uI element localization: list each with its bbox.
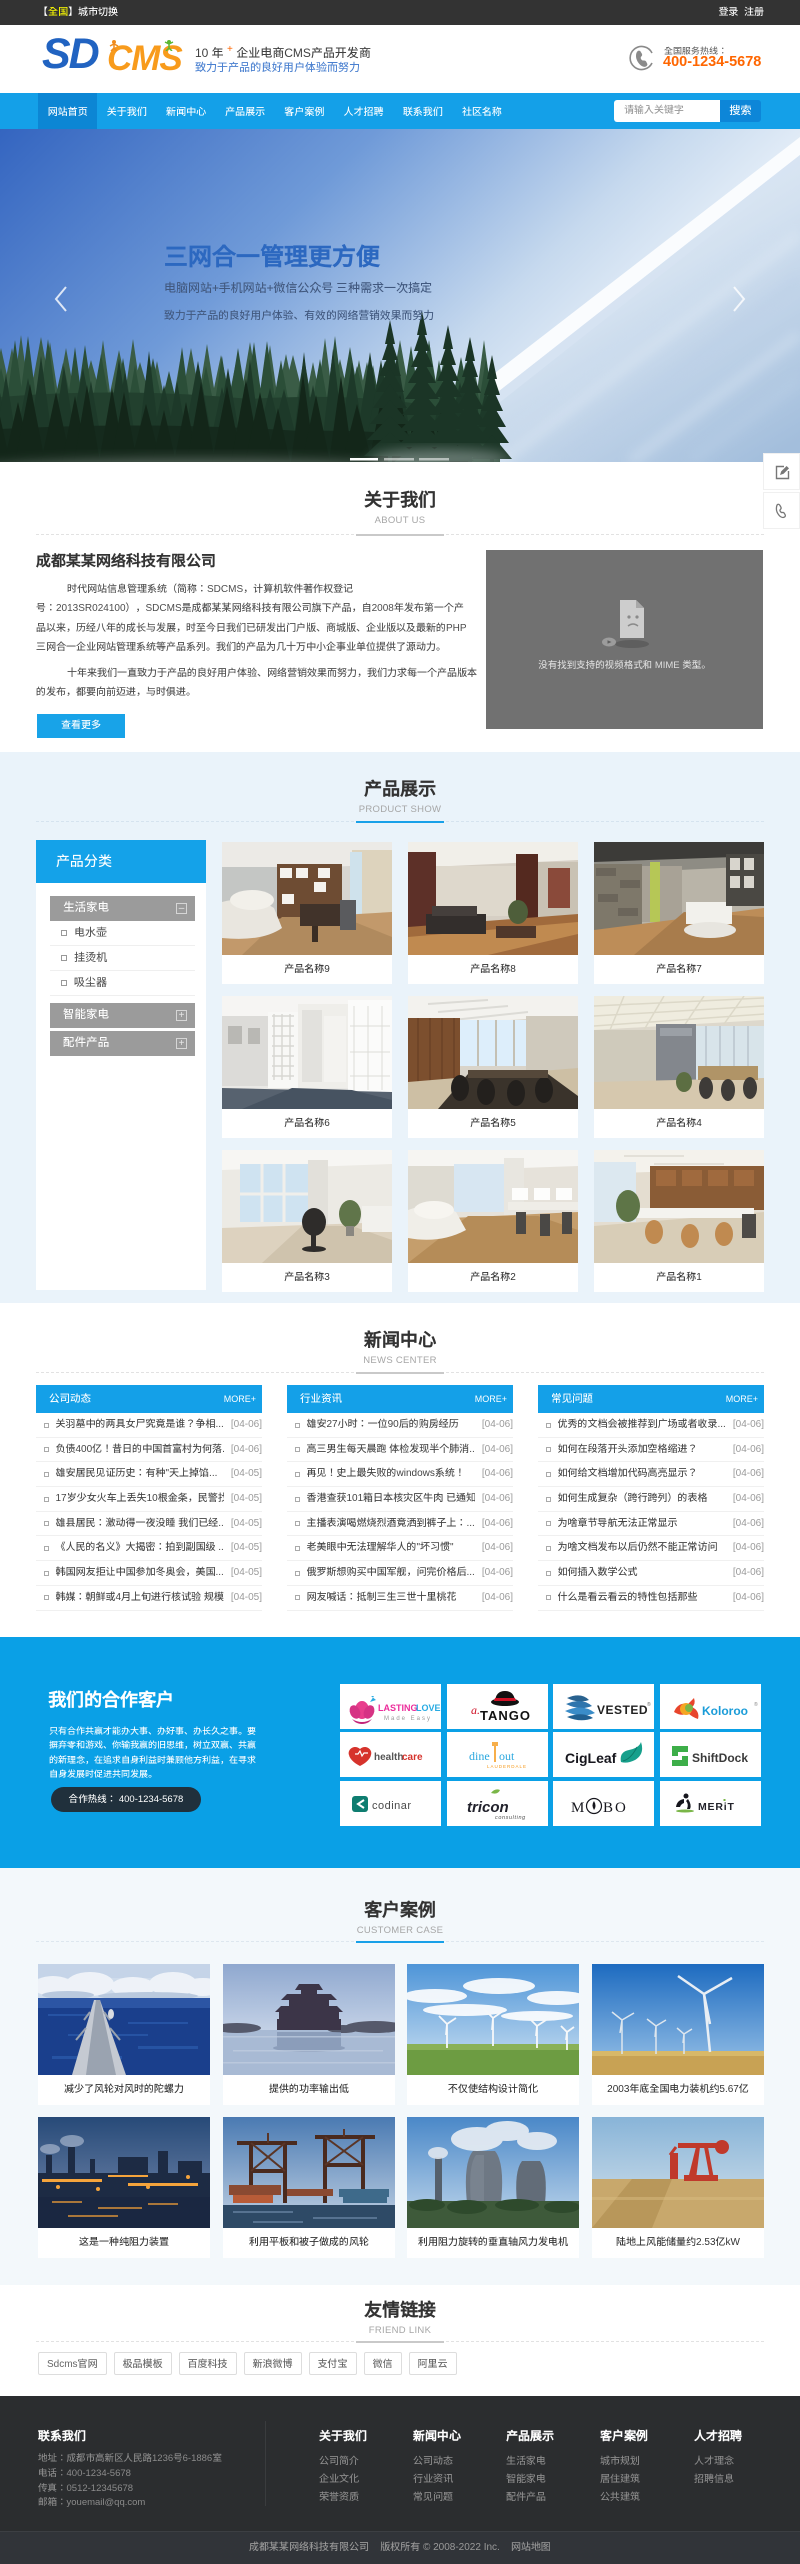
svg-text:电脑网站+手机网站+微信公众号 三种需求一次搞定: 电脑网站+手机网站+微信公众号 三种需求一次搞定: [164, 280, 432, 295]
svg-text:致力于产品的良好用户体验、有效的网络营销效果而努力: 致力于产品的良好用户体验、有效的网络营销效果而努力: [164, 309, 434, 322]
svg-text:consulting: consulting: [495, 1815, 526, 1821]
svg-text:Koloroo: Koloroo: [702, 1704, 748, 1718]
svg-text:dine: dine: [469, 1749, 490, 1763]
svg-text:®: ®: [754, 1701, 758, 1708]
svg-text:M: M: [571, 1800, 586, 1816]
svg-text:MERiT: MERiT: [698, 1801, 735, 1813]
svg-text:codinar: codinar: [372, 1800, 412, 1812]
svg-text:care: care: [402, 1752, 423, 1763]
svg-text:Made Easy: Made Easy: [384, 1716, 432, 1722]
svg-text:CigLeaf: CigLeaf: [565, 1750, 617, 1766]
svg-text:ShiftDock: ShiftDock: [692, 1751, 748, 1765]
svg-text:BO: BO: [603, 1800, 628, 1816]
svg-text:LAUDERDALE: LAUDERDALE: [487, 1764, 527, 1769]
svg-text:®: ®: [647, 1701, 651, 1708]
svg-text:LOVE: LOVE: [416, 1703, 441, 1713]
svg-text:health: health: [374, 1752, 403, 1763]
svg-text:TANGO: TANGO: [480, 1708, 531, 1723]
svg-text:a.: a.: [471, 1703, 480, 1717]
svg-text:三网合一管理更方便: 三网合一管理更方便: [164, 243, 382, 271]
svg-text:VESTED: VESTED: [597, 1703, 648, 1717]
svg-text:LASTING: LASTING: [378, 1703, 418, 1713]
svg-text:out: out: [499, 1749, 515, 1763]
svg-text:tricon: tricon: [467, 1799, 509, 1816]
